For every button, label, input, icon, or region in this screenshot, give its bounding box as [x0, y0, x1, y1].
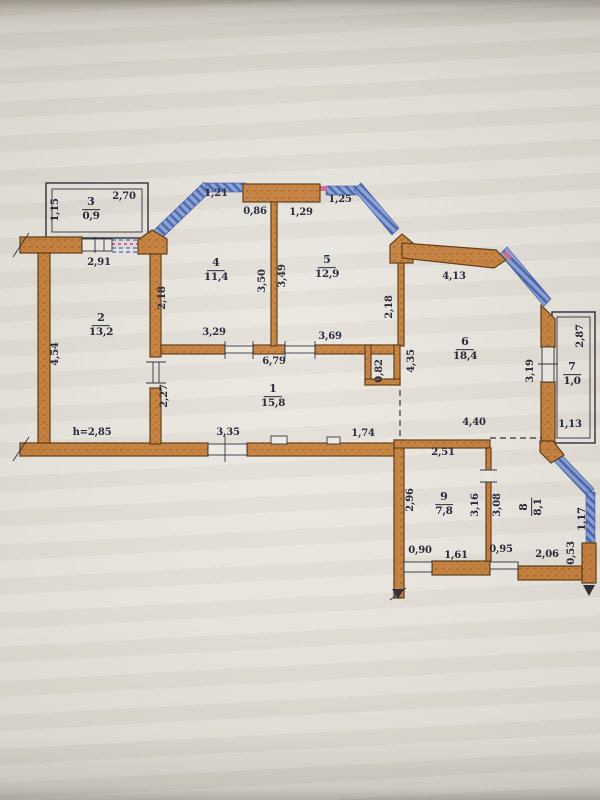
- room-label-6: 618,4: [453, 336, 477, 362]
- dim-label: 3,16: [471, 493, 481, 517]
- dim-label: h=2,85: [73, 428, 112, 438]
- dim-label: 1,17: [578, 507, 588, 531]
- room-number: 8: [518, 498, 532, 516]
- dim-label: 0,95: [489, 545, 513, 555]
- dim-label: 6,79: [262, 357, 286, 367]
- dim-label: 2,51: [431, 448, 455, 458]
- dim-label: 2,70: [112, 192, 136, 202]
- dim-label: 1,74: [351, 429, 375, 439]
- room-area: 0,9: [82, 210, 99, 222]
- dim-label: 1,61: [444, 551, 468, 561]
- dim-label: 3,49: [278, 264, 288, 288]
- balcony-walls: [46, 183, 595, 443]
- dim-label: 4,54: [51, 342, 61, 366]
- dim-label: 2,18: [385, 295, 395, 319]
- dim-label: 3,19: [526, 359, 536, 383]
- room-area: 13,2: [89, 326, 113, 338]
- room-number: 6: [456, 336, 474, 350]
- room-area: 1,0: [563, 375, 580, 387]
- dim-label: 1,25: [328, 195, 352, 205]
- open-boundaries: [400, 390, 542, 440]
- dim-label: 0,86: [243, 207, 267, 217]
- room-label-8: 88,1: [518, 498, 544, 516]
- room-area: 18,4: [453, 350, 477, 362]
- room-number: 9: [435, 491, 453, 505]
- room-number: 4: [207, 257, 225, 271]
- dim-label: 1,21: [204, 189, 228, 199]
- dim-label: 0,90: [408, 546, 432, 556]
- dim-label: 0,82: [375, 359, 385, 383]
- room-label-7: 71,0: [563, 361, 581, 387]
- dim-label: 2,18: [158, 286, 168, 310]
- dim-label: 4,40: [462, 418, 486, 428]
- dim-label: 3,50: [258, 269, 268, 293]
- room-number: 1: [264, 383, 282, 397]
- dim-label: 2,91: [87, 258, 111, 268]
- room-label-2: 213,2: [89, 312, 113, 338]
- room-label-1: 115,8: [261, 383, 285, 409]
- dim-label: 3,08: [493, 493, 503, 517]
- dim-label: 1,15: [51, 198, 61, 222]
- dim-label: 4,13: [442, 272, 466, 282]
- room-area: 7,8: [435, 505, 452, 517]
- dim-label: 0,53: [567, 541, 577, 565]
- room-label-5: 512,9: [315, 254, 339, 280]
- room-area: 11,4: [204, 271, 228, 283]
- dim-label: 3,35: [216, 428, 240, 438]
- room-number: 5: [318, 254, 336, 268]
- dim-label: 1,13: [558, 420, 582, 430]
- balcony-door-dashes: [112, 240, 140, 252]
- floor-plan-drawing: [0, 0, 600, 800]
- room-area: 15,8: [261, 397, 285, 409]
- room-number: 2: [92, 312, 110, 326]
- dim-label: 2,96: [406, 488, 416, 512]
- room-label-9: 97,8: [435, 491, 453, 517]
- room-area: 8,1: [532, 498, 544, 515]
- dim-label: 2,27: [160, 384, 170, 408]
- photographed-floor-plan: 115,8213,230,9411,4512,9618,471,088,197,…: [0, 0, 600, 800]
- dim-label: 2,06: [535, 550, 559, 560]
- dim-label: 2,87: [576, 324, 586, 348]
- dim-label: 3,29: [202, 328, 226, 338]
- room-area: 12,9: [315, 268, 339, 280]
- room-number: 3: [82, 196, 100, 210]
- room-label-4: 411,4: [204, 257, 228, 283]
- dim-label: 3,69: [318, 332, 342, 342]
- room-label-3: 30,9: [82, 196, 100, 222]
- dim-label: 4,35: [407, 349, 417, 373]
- dim-label: 1,29: [289, 208, 313, 218]
- room-number: 7: [563, 361, 581, 375]
